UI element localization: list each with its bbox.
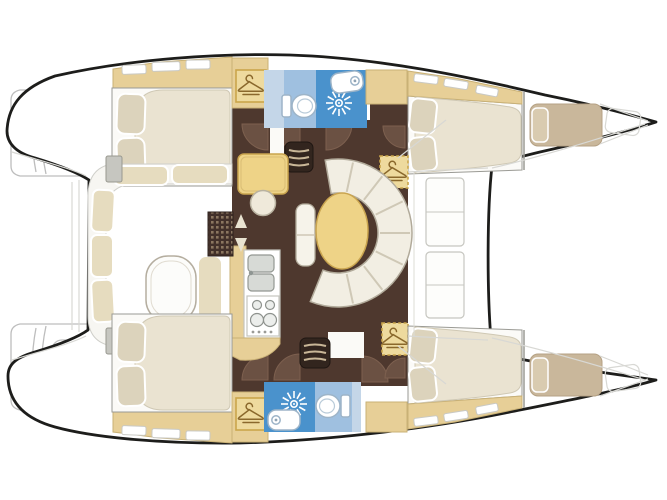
starboard-bathroom	[264, 382, 361, 432]
deck-grate-icon	[208, 212, 233, 256]
hull-window	[186, 60, 210, 69]
pillow	[116, 366, 145, 407]
sink-icon	[248, 274, 274, 291]
bench-cushion	[91, 279, 115, 322]
bench-cushion	[91, 235, 113, 277]
washbasin-icon	[330, 70, 364, 94]
galley	[230, 246, 280, 360]
starboard-aft-cabin	[112, 314, 232, 443]
port-bathroom	[264, 70, 367, 128]
catamaran-floorplan	[0, 0, 667, 500]
toilet-icon	[316, 395, 350, 418]
companionway-steps-port	[285, 142, 313, 172]
hull-window	[152, 429, 180, 439]
pillow	[408, 328, 437, 365]
faucet	[249, 271, 253, 275]
bench-cushion	[91, 189, 115, 232]
pillow	[408, 366, 437, 403]
bench-cushion	[172, 165, 228, 184]
transom-locker	[106, 156, 122, 182]
chart-table	[238, 154, 288, 194]
cockpit-table	[146, 256, 196, 322]
aft-platform-lines	[12, 152, 86, 360]
starboard-bathroom-cabinet	[366, 402, 407, 432]
pillow	[532, 358, 548, 392]
pillow	[532, 108, 548, 142]
dinette-table	[316, 193, 368, 269]
sink-icon	[248, 255, 274, 272]
washbasin-icon	[268, 410, 300, 430]
pillow	[408, 98, 437, 135]
starboard-wardrobe	[232, 392, 268, 442]
toilet-icon	[282, 95, 316, 118]
port-wardrobe	[232, 58, 268, 108]
pillow	[408, 136, 437, 173]
hull-window	[122, 426, 146, 436]
hull-window	[152, 62, 180, 72]
pillow	[116, 94, 145, 135]
hull-window	[186, 431, 210, 440]
companionway-steps-starboard	[300, 338, 330, 368]
port-bathroom-cabinet	[366, 70, 407, 104]
pillow	[116, 322, 145, 363]
bed-mattress	[135, 316, 230, 410]
passage-starboard	[328, 332, 364, 358]
chart-stool	[251, 191, 276, 216]
floorplan-page	[0, 0, 667, 500]
bench-cushion	[198, 256, 222, 320]
hull-window	[122, 65, 146, 75]
